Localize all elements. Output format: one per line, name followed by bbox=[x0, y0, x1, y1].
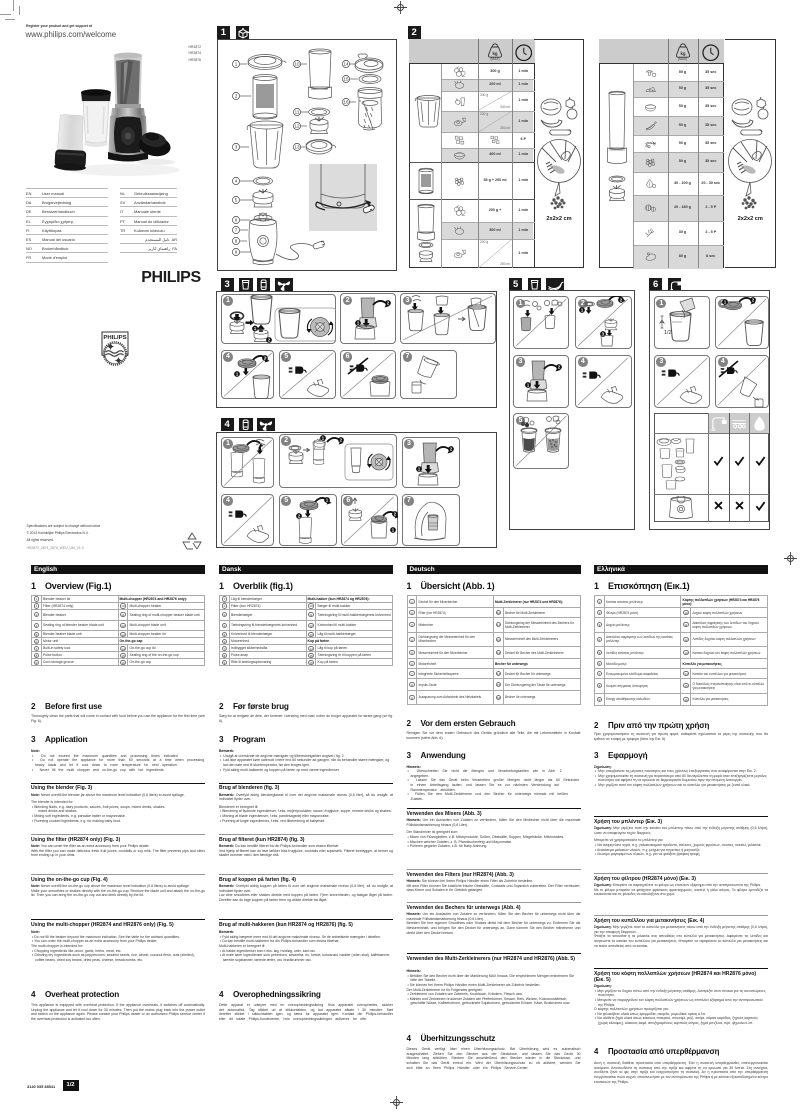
svg-text:12: 12 bbox=[294, 124, 300, 129]
svg-text:16: 16 bbox=[343, 100, 349, 105]
svg-text:PHILIPS: PHILIPS bbox=[103, 335, 126, 341]
svg-text:15: 15 bbox=[343, 77, 349, 82]
svg-text:1: 1 bbox=[235, 62, 238, 67]
svg-text:3: 3 bbox=[235, 145, 238, 150]
svg-text:9: 9 bbox=[235, 250, 238, 255]
svg-text:14: 14 bbox=[343, 62, 349, 67]
svg-text:7: 7 bbox=[235, 228, 238, 233]
svg-text:6: 6 bbox=[235, 218, 238, 223]
svg-text:13: 13 bbox=[294, 145, 300, 150]
svg-text:5: 5 bbox=[235, 198, 238, 203]
svg-text:11: 11 bbox=[295, 110, 300, 115]
svg-text:10: 10 bbox=[294, 62, 300, 67]
svg-text:8: 8 bbox=[235, 239, 238, 244]
svg-text:4: 4 bbox=[235, 179, 238, 184]
svg-text:2: 2 bbox=[235, 94, 238, 99]
svg-text:1/2: 1/2 bbox=[664, 330, 672, 336]
